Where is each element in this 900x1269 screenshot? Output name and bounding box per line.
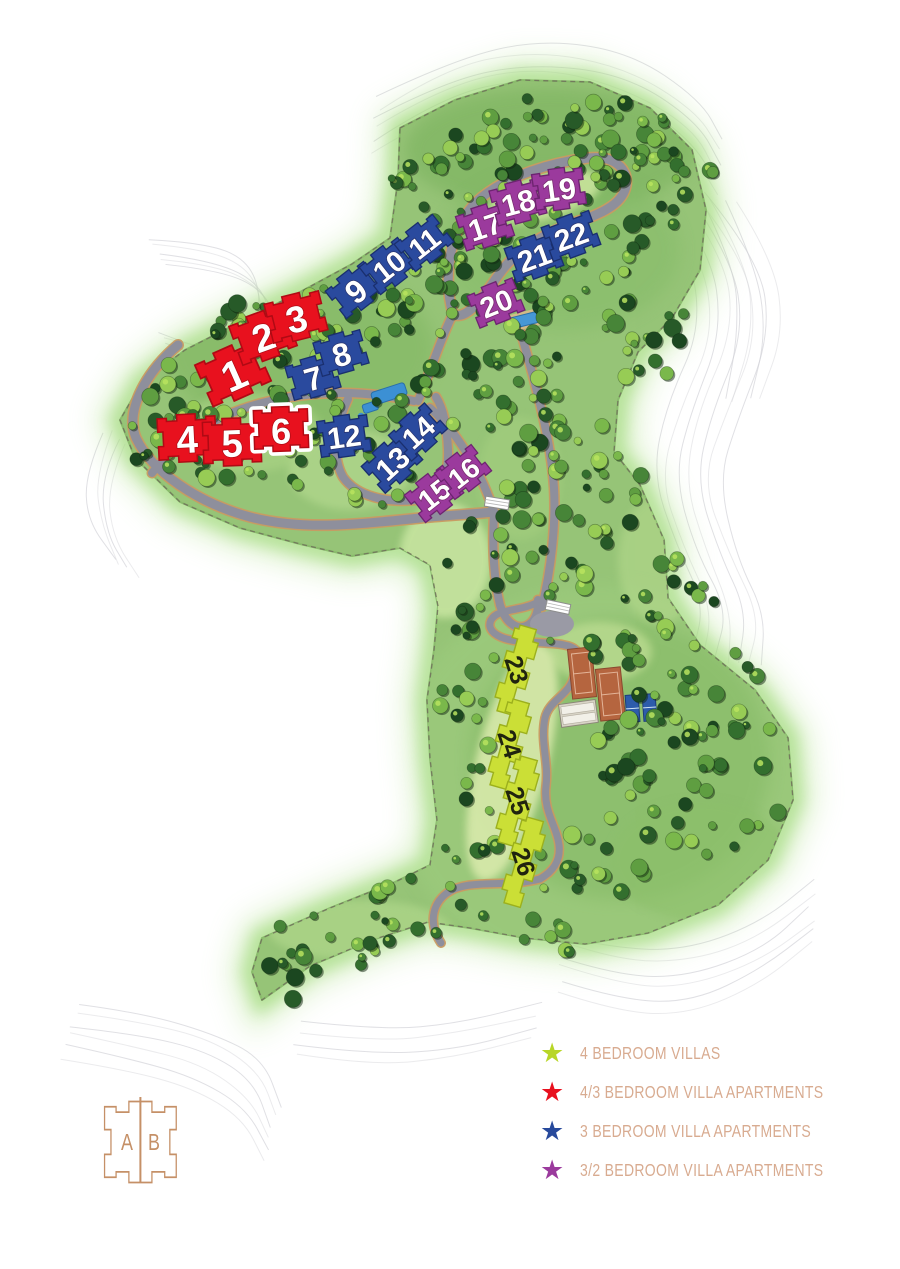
unit-b-label: B — [148, 1130, 160, 1156]
villa-footprint-outline: A B — [96, 1094, 186, 1190]
svg-text:5: 5 — [221, 422, 244, 466]
legend-item: ★ 4/3 BEDROOM VILLA APARTMENTS — [540, 1073, 884, 1112]
legend-item: ★ 4 BEDROOM VILLAS — [540, 1034, 884, 1073]
tennis-court[interactable] — [595, 667, 625, 721]
legend-item-label: 4/3 BEDROOM VILLA APARTMENTS — [580, 1082, 823, 1103]
legend: ★ 4 BEDROOM VILLAS ★ 4/3 BEDROOM VILLA A… — [540, 1034, 884, 1190]
svg-text:12: 12 — [325, 419, 363, 456]
clubhouse[interactable] — [559, 699, 599, 727]
villa-marker-6[interactable]: 6 — [253, 406, 309, 453]
star-icon: ★ — [540, 1118, 580, 1145]
legend-item-label: 4 BEDROOM VILLAS — [580, 1043, 721, 1064]
legend-item: ★ 3 BEDROOM VILLA APARTMENTS — [540, 1112, 884, 1151]
svg-text:6: 6 — [270, 410, 291, 452]
star-icon: ★ — [540, 1157, 580, 1184]
unit-a-label: A — [121, 1130, 133, 1156]
villa-footprint-logo: A B — [96, 1094, 186, 1195]
star-icon: ★ — [540, 1079, 580, 1106]
site-plan-page: 1234567891011121314151617181920212223242… — [0, 0, 900, 1269]
legend-item-label: 3/2 BEDROOM VILLA APARTMENTS — [580, 1160, 823, 1181]
svg-text:19: 19 — [540, 172, 578, 209]
svg-text:4: 4 — [175, 418, 199, 462]
star-icon: ★ — [540, 1040, 580, 1067]
parking-area — [530, 611, 574, 637]
legend-item-label: 3 BEDROOM VILLA APARTMENTS — [580, 1121, 811, 1142]
legend-item: ★ 3/2 BEDROOM VILLA APARTMENTS — [540, 1151, 884, 1190]
